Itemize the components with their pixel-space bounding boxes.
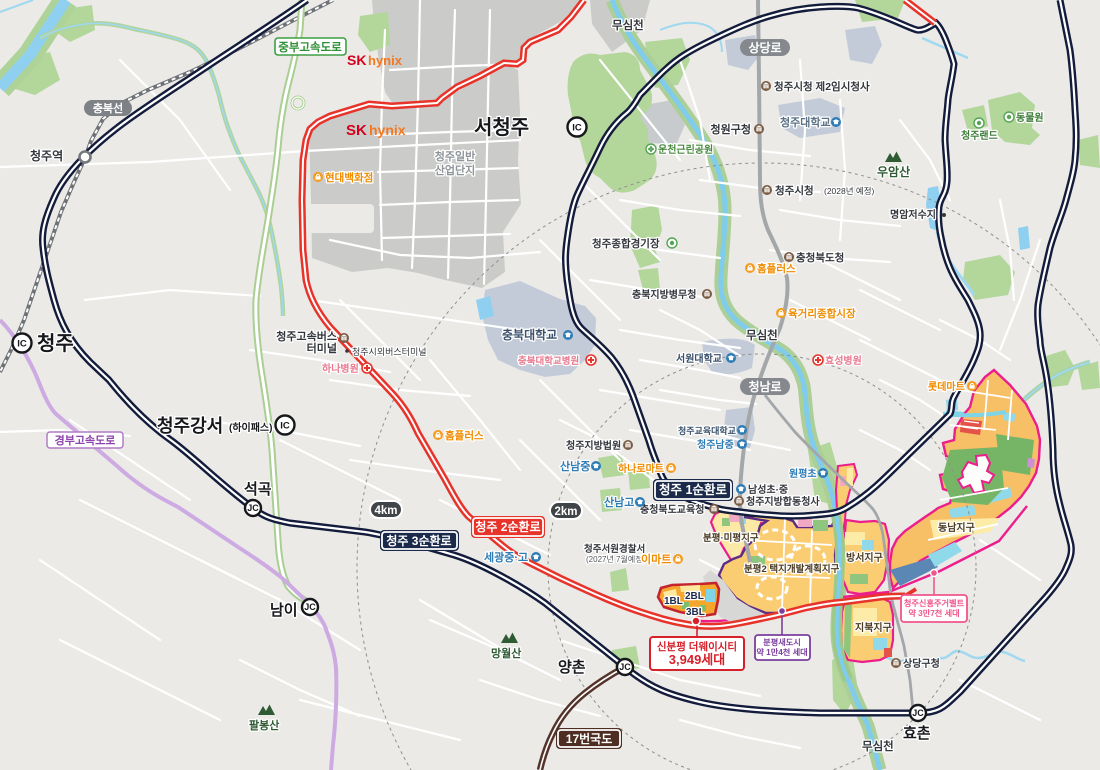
svg-text:세광중·고: 세광중·고 xyxy=(484,550,528,564)
svg-text:하나병원: 하나병원 xyxy=(322,362,359,375)
svg-text:효촌: 효촌 xyxy=(903,725,931,742)
svg-text:청주서원경찰서: 청주서원경찰서 xyxy=(584,543,645,555)
svg-text:남성초·중: 남성초·중 xyxy=(748,483,788,496)
svg-text:(2027년 7월예정): (2027년 7월예정) xyxy=(586,554,646,564)
svg-text:SK: SK xyxy=(346,122,367,139)
svg-text:중부고속도로: 중부고속도로 xyxy=(278,41,342,54)
svg-text:4km: 4km xyxy=(374,505,397,517)
svg-text:청주랜드: 청주랜드 xyxy=(961,129,998,142)
svg-text:충북대학교병원: 충북대학교병원 xyxy=(518,355,579,367)
svg-text:청주일반: 청주일반 xyxy=(435,149,475,163)
svg-text:청주지방법원: 청주지방법원 xyxy=(566,439,621,452)
svg-text:이마트: 이마트 xyxy=(641,552,671,566)
svg-text:무심천: 무심천 xyxy=(862,739,894,753)
svg-text:청주강서: 청주강서 xyxy=(157,416,223,436)
svg-text:무심천: 무심천 xyxy=(746,328,778,342)
svg-text:경부고속도로: 경부고속도로 xyxy=(55,433,116,447)
svg-text:홈플러스: 홈플러스 xyxy=(445,429,484,442)
svg-text:우암산: 우암산 xyxy=(877,164,910,179)
svg-text:청주시외버스터미널: 청주시외버스터미널 xyxy=(352,346,427,357)
svg-text:청원구청: 청원구청 xyxy=(711,122,751,136)
svg-text:청주 1순환로: 청주 1순환로 xyxy=(659,482,727,497)
svg-text:석곡: 석곡 xyxy=(244,480,272,498)
svg-text:1BL: 1BL xyxy=(664,596,683,607)
svg-text:명암저수지: 명암저수지 xyxy=(890,208,936,221)
svg-text:분평·미평지구: 분평·미평지구 xyxy=(703,532,759,544)
svg-text:청주: 청주 xyxy=(37,332,74,355)
svg-text:청주신흥주거벨트: 청주신흥주거벨트 xyxy=(904,598,965,608)
svg-text:운천근린공원: 운천근린공원 xyxy=(658,143,713,156)
svg-text:청주시청: 청주시청 xyxy=(775,184,814,197)
svg-text:동남지구: 동남지구 xyxy=(938,521,975,534)
svg-text:상당로: 상당로 xyxy=(748,40,781,55)
svg-text:(하이패스): (하이패스) xyxy=(229,421,272,434)
svg-text:효성병원: 효성병원 xyxy=(825,354,862,367)
svg-text:산업단지: 산업단지 xyxy=(435,163,475,177)
svg-text:청주대학교: 청주대학교 xyxy=(780,115,831,129)
svg-text:산남고: 산남고 xyxy=(604,495,634,509)
svg-text:SK: SK xyxy=(347,52,366,68)
svg-text:팔봉산: 팔봉산 xyxy=(249,718,279,732)
svg-text:hynix: hynix xyxy=(369,122,406,138)
svg-text:현대백화점: 현대백화점 xyxy=(325,171,373,184)
svg-text:청남로: 청남로 xyxy=(748,379,781,394)
svg-text:무심천: 무심천 xyxy=(612,18,644,32)
svg-text:충청북도교육청: 충청북도교육청 xyxy=(640,503,704,516)
svg-text:충북대학교: 충북대학교 xyxy=(502,327,557,342)
svg-text:2BL: 2BL xyxy=(685,591,704,602)
svg-text:(2028년 예정): (2028년 예정) xyxy=(824,186,875,196)
svg-text:하나로마트: 하나로마트 xyxy=(618,462,664,475)
svg-text:청주 2순환로: 청주 2순환로 xyxy=(475,519,540,534)
svg-text:청주교육대학교: 청주교육대학교 xyxy=(678,425,736,436)
svg-text:청주시청 제2임시청사: 청주시청 제2임시청사 xyxy=(774,80,870,93)
svg-text:청주지방합동청사: 청주지방합동청사 xyxy=(746,495,820,508)
svg-text:홈플러스: 홈플러스 xyxy=(757,262,796,275)
svg-text:청주남중: 청주남중 xyxy=(697,438,734,451)
svg-text:hynix: hynix xyxy=(368,53,403,68)
svg-text:충청북도청: 충청북도청 xyxy=(796,251,844,264)
svg-text:망월산: 망월산 xyxy=(491,646,521,660)
svg-text:서청주: 서청주 xyxy=(474,116,529,139)
svg-text:서원대학교: 서원대학교 xyxy=(676,352,722,365)
svg-text:상당구청: 상당구청 xyxy=(903,657,940,670)
svg-text:분평2 택지개발계획지구: 분평2 택지개발계획지구 xyxy=(744,563,840,575)
svg-text:청주 3순환로: 청주 3순환로 xyxy=(386,533,451,548)
svg-text:산남중: 산남중 xyxy=(560,459,590,473)
svg-text:약 1만4천 세대: 약 1만4천 세대 xyxy=(756,647,807,657)
svg-text:분평새도시: 분평새도시 xyxy=(763,637,801,647)
svg-text:롯데마트: 롯데마트 xyxy=(928,380,965,393)
svg-text:남이: 남이 xyxy=(270,602,298,619)
svg-text:3,949세대: 3,949세대 xyxy=(669,652,725,667)
svg-text:청주고속버스: 청주고속버스 xyxy=(276,329,337,343)
svg-text:터미널: 터미널 xyxy=(307,341,337,355)
svg-text:원평초: 원평초 xyxy=(789,467,817,480)
svg-text:방서지구: 방서지구 xyxy=(846,551,883,564)
svg-text:충북선: 충북선 xyxy=(93,101,123,115)
svg-text:육거리종합시장: 육거리종합시장 xyxy=(788,307,856,320)
svg-text:양촌: 양촌 xyxy=(558,659,586,676)
svg-text:청주역: 청주역 xyxy=(30,148,63,163)
svg-text:충북지방병무청: 충북지방병무청 xyxy=(632,288,696,301)
svg-text:지북지구: 지북지구 xyxy=(855,621,892,634)
svg-text:2km: 2km xyxy=(554,506,577,518)
svg-text:청주종합경기장: 청주종합경기장 xyxy=(592,237,660,250)
svg-text:약 3만7천 세대: 약 3만7천 세대 xyxy=(908,608,959,618)
svg-text:17번국도: 17번국도 xyxy=(566,731,612,746)
svg-text:동물원: 동물원 xyxy=(1016,111,1044,124)
